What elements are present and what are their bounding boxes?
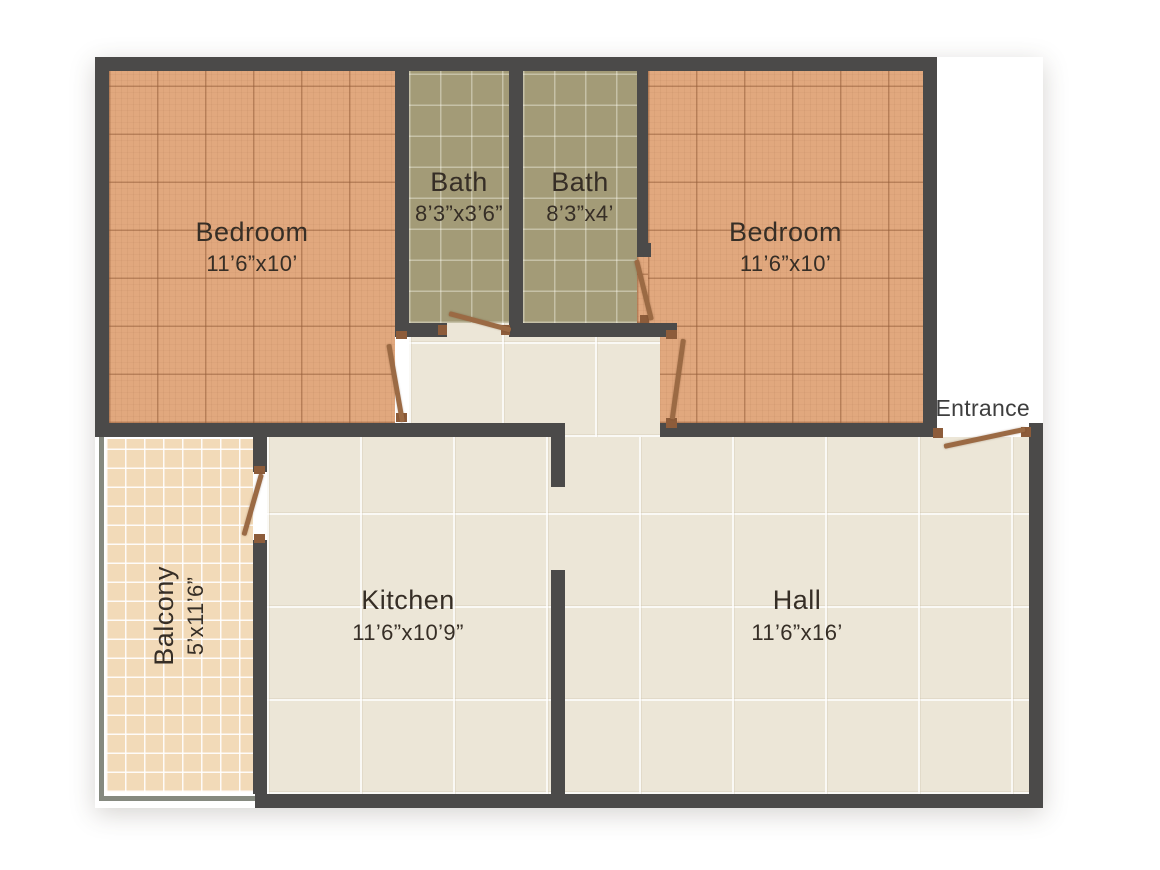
bedroom-left-door-jamb-top: [396, 331, 407, 339]
wall-hall-top: [660, 423, 937, 437]
corridor-floor: [409, 323, 660, 437]
entrance-label: Entrance: [878, 395, 1030, 422]
bath-right-floor: [523, 71, 637, 323]
bedroom-left-floor: [109, 71, 395, 423]
wall-bedroom-right-outer: [923, 57, 937, 437]
wall-top: [95, 57, 937, 71]
wall-bedroom-left-bath-divider: [395, 71, 409, 337]
floor-plan: Bedroom 11’6”x10’ Bath 8’3”x3’6” Bath 8’…: [0, 0, 1160, 870]
wall-kitchen-hall-divider: [551, 570, 565, 794]
entrance-jamb-left: [933, 428, 943, 438]
balcony-railing-bottom: [99, 796, 257, 801]
wall-bath-divider: [509, 71, 523, 337]
bedroom-right-door-jamb-bottom: [666, 418, 677, 428]
kitchen-hall-floor: [267, 437, 1029, 794]
bath-left-floor: [409, 71, 509, 323]
wall-kitchen-left-lower: [253, 540, 267, 794]
wall-bottom: [255, 794, 1043, 808]
wall-left: [95, 57, 109, 437]
bedroom-right-floor: [648, 71, 923, 423]
balcony-door-jamb-bottom: [254, 534, 265, 543]
bedroom-right-door-jamb-top: [666, 330, 677, 339]
wall-kitchen-right-stub: [551, 437, 565, 487]
wall-bath-right-east: [637, 71, 648, 257]
wall-bath-right-bottom: [509, 323, 677, 337]
wall-bedroom-left-bottom-kitchen-top: [95, 423, 565, 437]
bath-left-door-jamb-left: [438, 325, 447, 335]
wall-bath-right-east-cap: [637, 243, 651, 257]
balcony-floor: [106, 439, 253, 792]
wall-hall-right-outer: [1029, 423, 1043, 808]
balcony-railing-left: [99, 437, 104, 801]
